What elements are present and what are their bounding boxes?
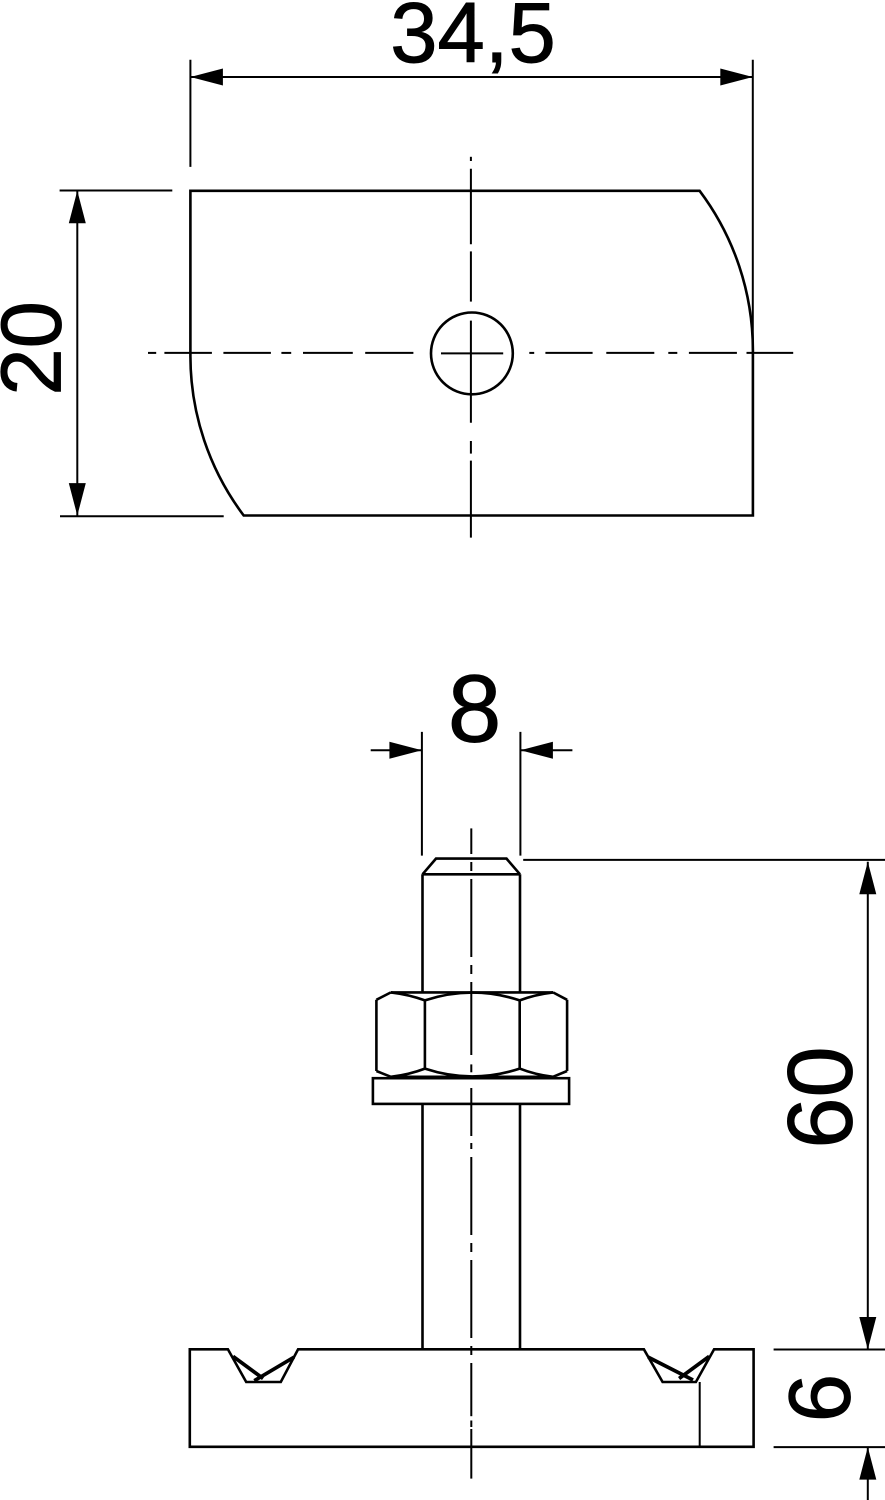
svg-text:20: 20 bbox=[0, 301, 79, 396]
svg-text:8: 8 bbox=[448, 655, 501, 762]
svg-text:60: 60 bbox=[769, 1046, 871, 1148]
svg-text:6: 6 bbox=[771, 1374, 868, 1422]
svg-text:34,5: 34,5 bbox=[390, 0, 555, 81]
